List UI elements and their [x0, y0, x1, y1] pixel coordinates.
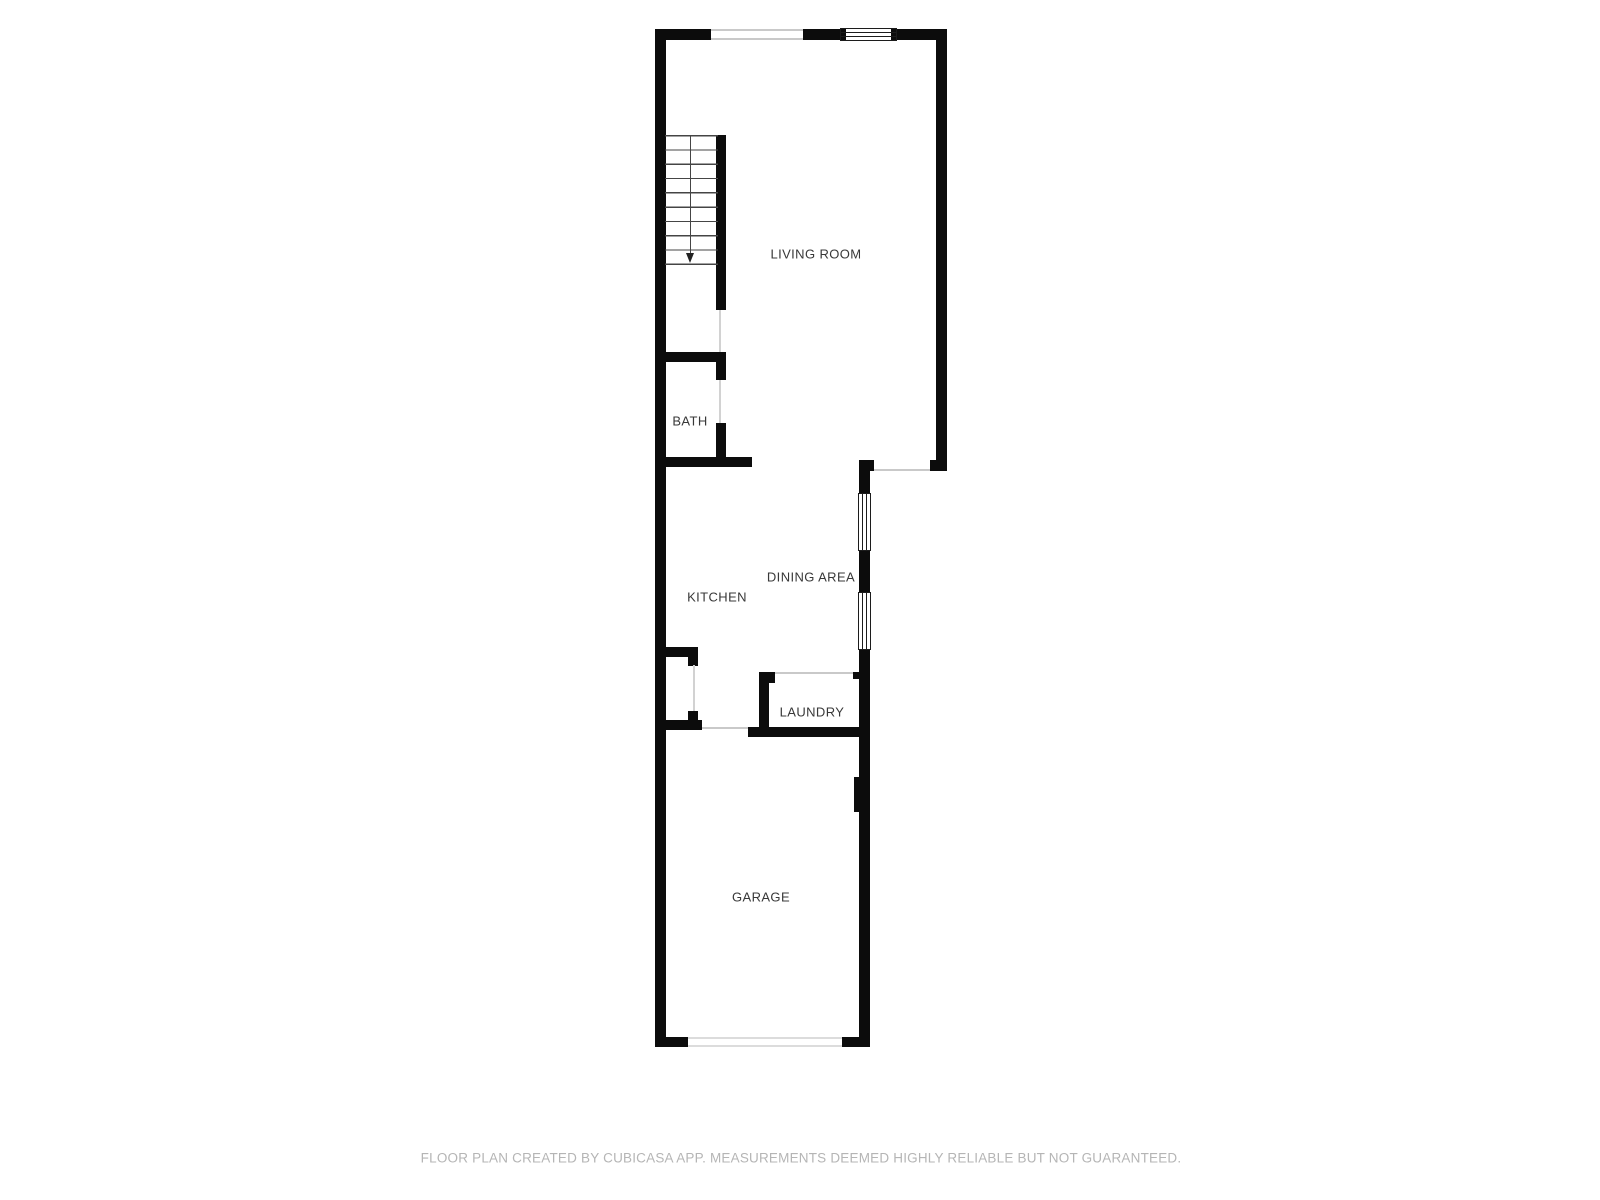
- window-pane-line: [841, 36, 896, 37]
- wall-opening-laundry: [775, 672, 859, 674]
- room-label-laundry: LAUNDRY: [780, 705, 845, 720]
- wall-exterior-right-upper: [936, 29, 947, 470]
- room-label-kitchen: KITCHEN: [687, 590, 747, 605]
- floor-plan-canvas: LIVING ROOM BATH KITCHEN DINING AREA LAU…: [0, 0, 1600, 1200]
- staircase: [665, 135, 718, 265]
- window-pane-line: [841, 32, 896, 33]
- wall-bath-right-upper: [716, 352, 726, 380]
- wall-opening-kitchen-garage: [702, 727, 748, 729]
- window-pane-line: [862, 593, 863, 649]
- wall-opening-top: [711, 29, 803, 40]
- wall-garage-bottom-right: [842, 1037, 870, 1047]
- wall-bath-bottom: [655, 457, 752, 467]
- stair-rail-line: [690, 135, 691, 255]
- room-label-dining-area: DINING AREA: [767, 570, 855, 585]
- wall-exterior-right-upper-foot: [930, 460, 947, 471]
- door-panel-garage-side: [854, 777, 869, 812]
- window-pane-line: [862, 494, 863, 550]
- door-opening-hall: [719, 310, 721, 352]
- window-cap: [891, 29, 896, 40]
- window-dining-1: [858, 493, 871, 551]
- window-cap: [841, 29, 846, 40]
- wall-exterior-top-left: [655, 29, 711, 40]
- door-opening-closet: [693, 665, 695, 711]
- wall-opening-entry: [874, 469, 930, 471]
- room-label-living-room: LIVING ROOM: [770, 247, 861, 262]
- wall-garage-bottom-left: [655, 1037, 688, 1047]
- stairs-down-arrow-icon: [686, 253, 694, 263]
- window-living-room: [840, 28, 897, 41]
- wall-dining-top-stub: [859, 460, 874, 471]
- window-pane-line: [866, 494, 867, 550]
- wall-exterior-top-mid: [803, 29, 840, 40]
- wall-closet-bottom: [666, 720, 702, 730]
- wall-laundry-top-stub: [853, 672, 859, 679]
- window-pane-line: [866, 593, 867, 649]
- garage-door: [688, 1037, 842, 1047]
- wall-closet-top: [666, 647, 698, 657]
- wall-laundry-top-corner: [759, 672, 775, 683]
- room-label-garage: GARAGE: [732, 890, 790, 905]
- wall-laundry-bottom: [748, 727, 870, 737]
- room-label-bath: BATH: [672, 414, 707, 429]
- door-opening-bath: [719, 380, 721, 423]
- footer-disclaimer: FLOOR PLAN CREATED BY CUBICASA APP. MEAS…: [421, 1151, 1182, 1166]
- window-dining-2: [858, 592, 871, 650]
